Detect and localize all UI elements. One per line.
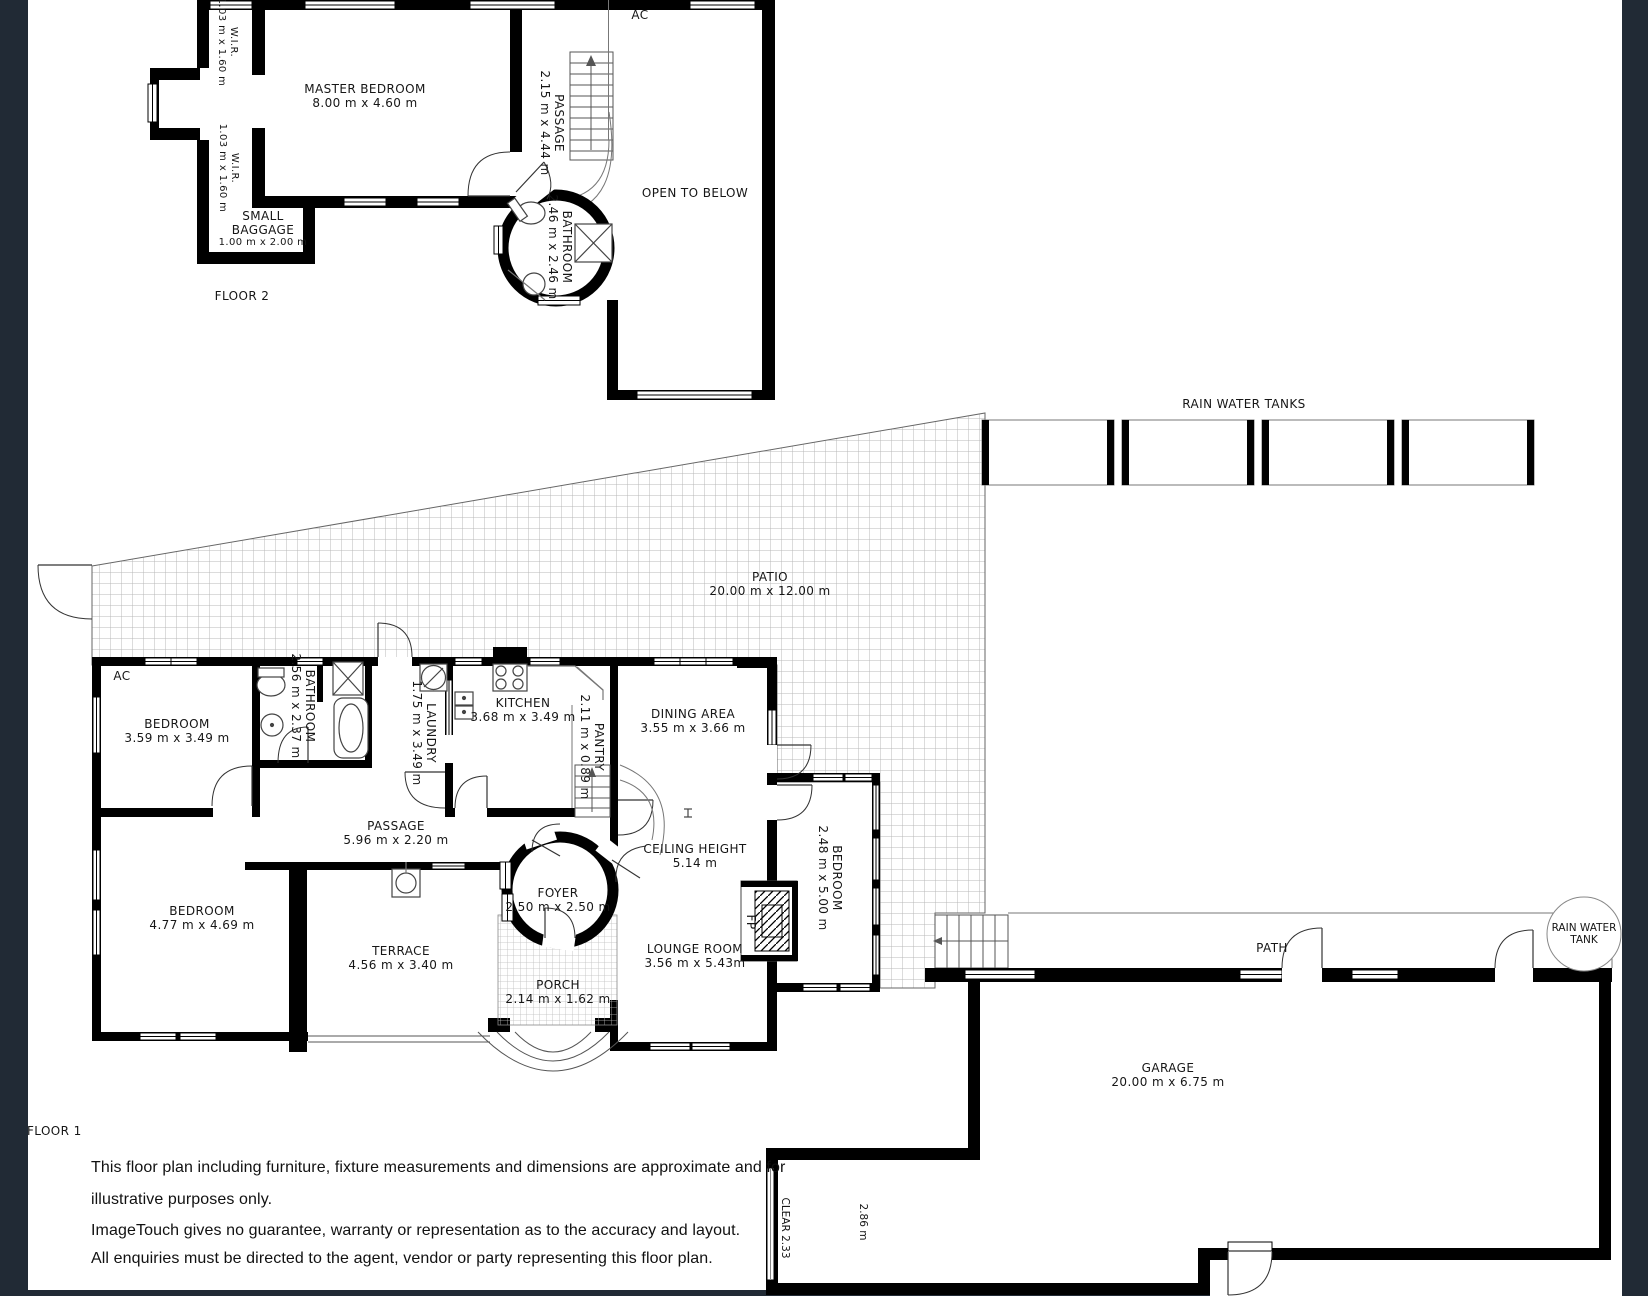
garage-clear-label: CLEAR 2.33 [779,1197,791,1258]
room-label-porch: PORCH2.14 m x 1.62 m [505,978,610,1006]
floor-plan-drawing [0,0,1648,1296]
room-label-passage-f1: PASSAGE5.96 m x 2.20 m [343,819,448,847]
ac-label-f2: AC [631,8,648,22]
floor1-label: FLOOR 1 [27,1124,82,1138]
room-label-dining: DINING AREA3.55 m x 3.66 m [640,707,745,735]
room-label-passage-f2: PASSAGE2.15 m x 4.44 m [538,70,566,175]
room-label-garage: GARAGE20.00 m x 6.75 m [1111,1061,1224,1089]
ceiling-height-label: CEILING HEIGHT5.14 m [643,842,746,870]
room-label-terrace: TERRACE4.56 m x 3.40 m [348,944,453,972]
room-label-wir-bottom: W.I.R.1.03 m x 1.60 m [216,124,240,213]
disclaimer-line-3: ImageTouch gives no guarantee, warranty … [91,1222,740,1240]
room-label-bedroom-left: BEDROOM3.59 m x 3.49 m [124,717,229,745]
rain-water-tanks-label: RAIN WATER TANKS [1182,397,1305,411]
disclaimer-line-4: All enquiries must be directed to the ag… [91,1250,713,1268]
room-label-patio: PATIO20.00 m x 12.00 m [709,570,830,598]
room-label-foyer: FOYER2.50 m x 2.50 m [505,886,610,914]
garage-clearance-label: 2.86 m [857,1204,869,1241]
floor-plan-page: W.I.R.1.03 m x 1.60 m W.I.R.1.03 m x 1.6… [0,0,1648,1296]
room-label-wir-top: W.I.R.1.03 m x 1.60 m [215,0,239,86]
room-label-laundry: LAUNDRY1.75 m x 3.49 m [410,680,438,785]
disclaimer-line-2: illustrative purposes only. [91,1191,272,1209]
rain-water-tank-label: RAIN WATERTANK [1552,922,1617,946]
room-label-small-baggage: SMALLBAGGAGE 1.00 m x 2.00 m [219,209,308,249]
room-label-lounge: LOUNGE ROOM3.56 m x 5.43m [645,942,746,970]
room-label-bedroom-bottom: BEDROOM4.77 m x 4.69 m [149,904,254,932]
floor2-label: FLOOR 2 [215,289,270,303]
room-label-kitchen: KITCHEN3.68 m x 3.49 m [470,696,575,724]
room-label-bedroom-right: BEDROOM2.48 m x 5.00 m [816,825,844,930]
disclaimer-line-1: This floor plan including furniture, fix… [91,1159,785,1177]
ac-label-f1: AC [113,669,130,683]
open-to-below-label: OPEN TO BELOW [642,186,748,200]
room-label-pantry: PANTRY2.11 m x 0.89 m [578,694,606,799]
room-label-bathroom-f1: BATHROOM2.56 m x 2.37 m [289,653,317,758]
room-label-bathroom-f2: BATHROOM2.46 m x 2.46 m [546,194,574,299]
fireplace-label: FP [744,915,758,930]
room-label-master-bedroom: MASTER BEDROOM8.00 m x 4.60 m [304,82,425,110]
path-label: PATH [1256,941,1288,955]
